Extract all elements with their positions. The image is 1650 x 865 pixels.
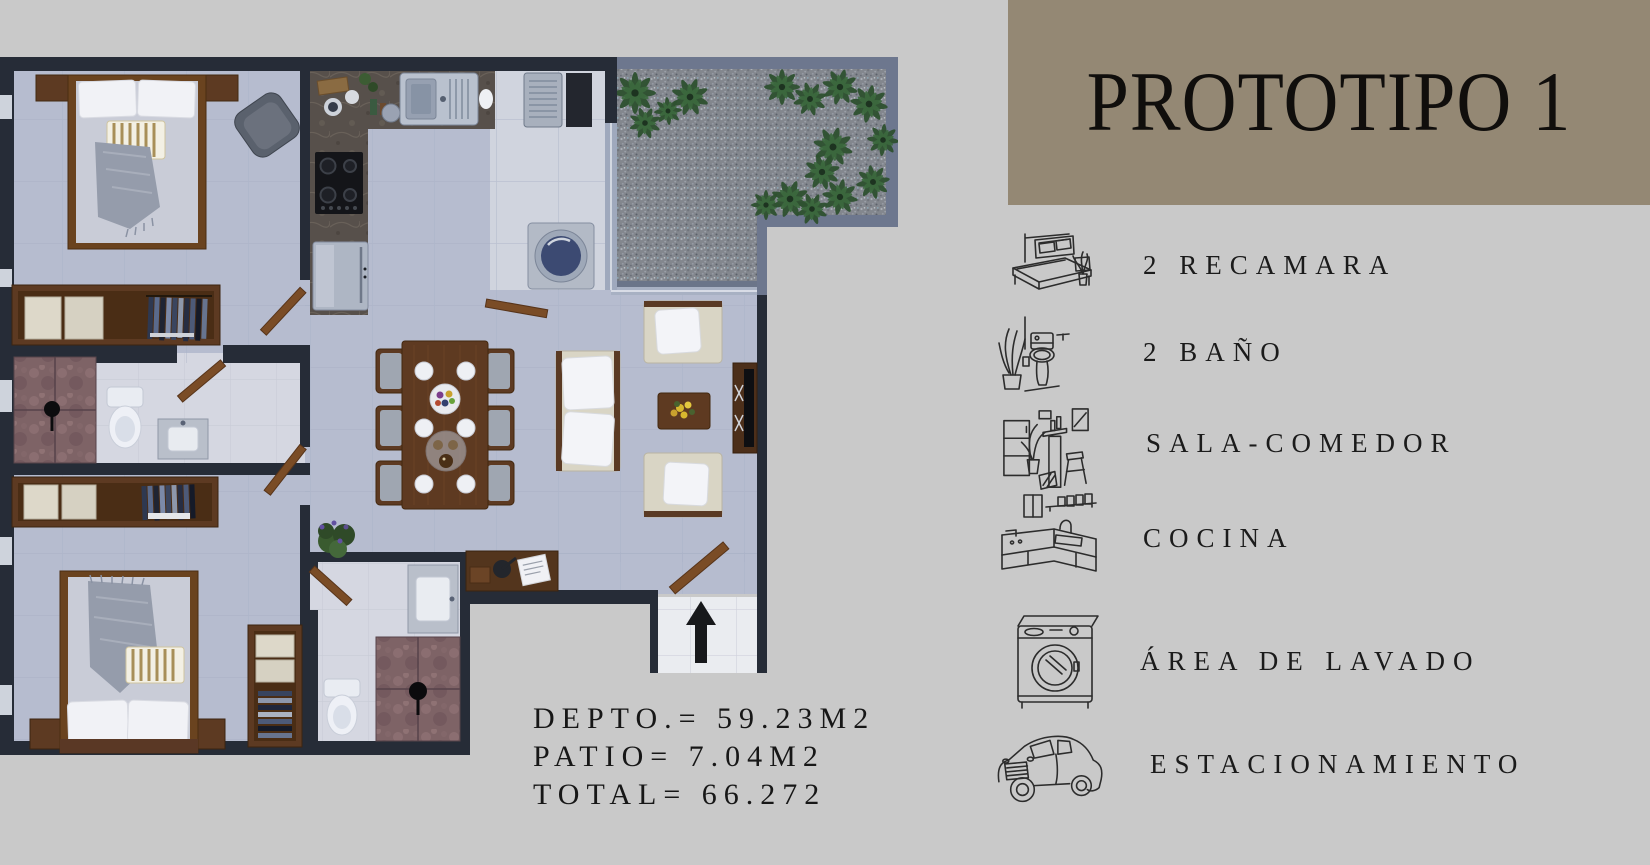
washing-machine-top (528, 223, 594, 289)
bed-icon (1003, 228, 1105, 308)
wardrobe-2 (12, 477, 218, 527)
prototype-flyer: DEPTO.= 59.23M2 PATIO= 7.04M2 TOTAL= 66.… (0, 0, 1650, 865)
armchair-top (644, 301, 722, 363)
sofa (556, 351, 620, 471)
washing-machine-icon (1008, 610, 1102, 712)
car-icon (993, 722, 1107, 808)
striped-pillow-2 (126, 647, 184, 683)
feature-label-recamara: 2 RECAMARA (1143, 250, 1396, 281)
toilet-icon (995, 313, 1081, 395)
vanity-2 (408, 565, 458, 633)
fruit-bowl (430, 384, 460, 414)
fridge (313, 242, 368, 310)
toilet-1 (107, 387, 143, 448)
stove (315, 152, 363, 214)
feature-label-lavado: ÁREA DE LAVADO (1140, 646, 1481, 677)
wardrobe-1 (12, 285, 220, 345)
tv-console (733, 363, 757, 453)
feature-label-cocina: COCINA (1143, 523, 1295, 554)
measurement-total: TOTAL= 66.272 (533, 776, 875, 814)
armchair-bottom (644, 453, 722, 517)
coffee-table (658, 393, 710, 429)
title-banner: PROTOTIPO 1 (1008, 0, 1650, 205)
floor-plan (0, 57, 898, 755)
living-dining-icon (1000, 402, 1092, 500)
feature-label-estacionamiento: ESTACIONAMIENTO (1150, 749, 1525, 780)
vanity-1 (158, 419, 208, 459)
page-title: PROTOTIPO 1 (1087, 54, 1572, 151)
kitchen-sink (400, 73, 478, 125)
feature-label-sala: SALA-COMEDOR (1146, 428, 1457, 459)
patio (611, 57, 898, 295)
desk (466, 551, 558, 591)
feature-label-bano: 2 BAÑO (1143, 337, 1288, 368)
dining-area (376, 341, 514, 509)
floor-plan-render (0, 57, 898, 755)
measurement-depto: DEPTO.= 59.23M2 (533, 700, 875, 738)
kitchen-icon (998, 490, 1100, 586)
linen-shelf (248, 625, 302, 747)
area-measurements: DEPTO.= 59.23M2 PATIO= 7.04M2 TOTAL= 66.… (533, 700, 875, 814)
measurement-patio: PATIO= 7.04M2 (533, 738, 875, 776)
toilet-2 (324, 679, 360, 735)
laundry-panel (566, 73, 592, 127)
